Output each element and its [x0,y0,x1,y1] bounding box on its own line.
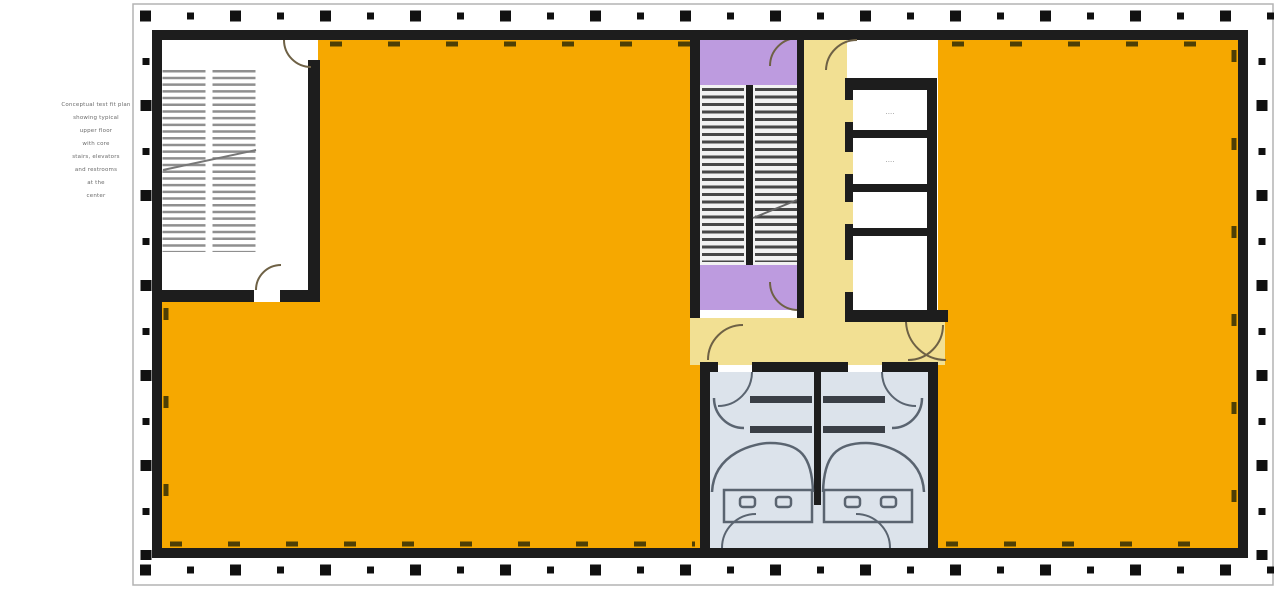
wall-bottom [152,548,1248,558]
service-rooms: .... .... [845,78,948,360]
stall-partition [750,396,812,403]
stair-room-right-wall [308,60,320,302]
core-corridor-vertical [804,33,847,323]
service-rooms-wall [927,78,937,322]
stair-room-bottom-wall [280,290,320,302]
stall-partition [750,426,812,433]
room-label: .... [886,156,895,164]
wall-right [1238,30,1248,558]
room-door-gap [845,260,853,292]
service-rooms-wall [845,78,937,90]
room-door-gap [845,100,853,122]
room-divider [853,130,927,138]
room-door-gap [845,202,853,224]
room-divider [853,184,927,192]
office-area-right [938,40,1238,548]
room-label: .... [886,108,895,116]
stall-partition [823,426,885,433]
restroom-area [700,362,938,548]
stair-room-left [152,40,320,302]
door-arc [284,40,311,67]
door-arc [256,265,281,290]
room-door-gap [845,152,853,174]
stair-divider-wall [746,85,753,265]
restroom-center-wall [814,372,821,505]
restroom-wall-right [928,362,938,548]
wall-left [152,30,162,558]
room-divider [853,228,927,236]
shaft-wall-left [690,30,700,318]
floor-plan-drawing: .... .... [0,0,1280,590]
floor-plan-canvas: Conceptual test fit plan showing typical… [0,0,1280,590]
stall-partition [823,396,885,403]
service-rooms-wall [845,310,948,322]
restroom-wall-top [752,362,848,372]
stair-room-bottom-wall [152,290,254,302]
service-rooms-interior [853,90,927,310]
shaft-wall-right [797,30,804,318]
restroom-wall-top [882,362,938,372]
restroom-wall-left [700,362,710,548]
stair-core-center [700,38,800,310]
stair-break-line [163,150,256,170]
restroom-wall-top [700,362,718,372]
